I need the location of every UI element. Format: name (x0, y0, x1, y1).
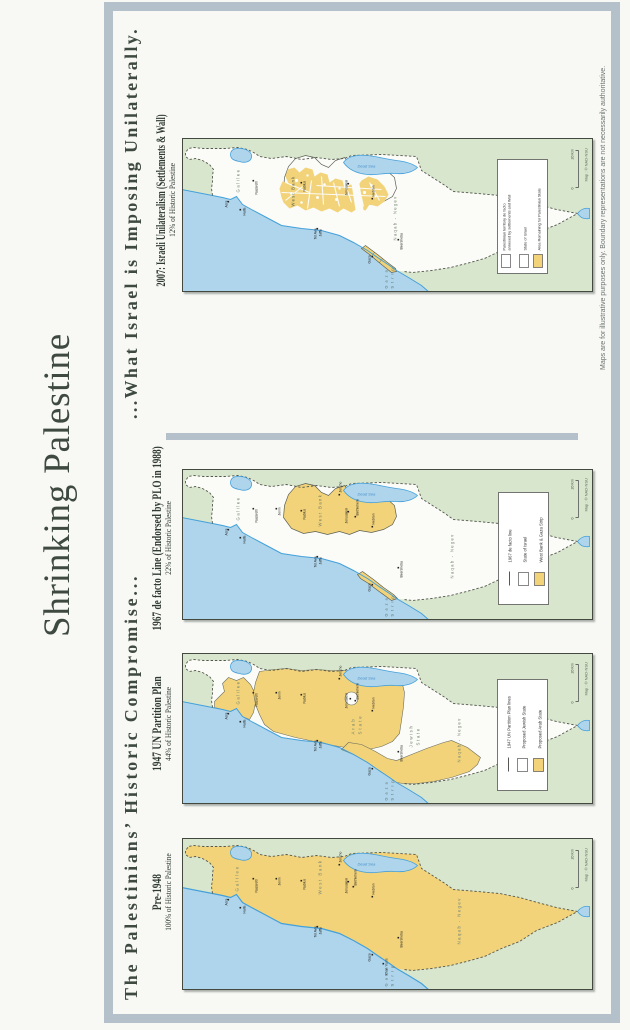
svg-text:Map : © NAD-NSU: Map : © NAD-NSU (584, 148, 589, 182)
svg-text:1967 de facto line: 1967 de facto line (508, 529, 513, 563)
svg-text:Nazareth: Nazareth (255, 509, 259, 523)
svg-text:State of Israel: State of Israel (524, 227, 528, 251)
svg-text:Acre: Acre (225, 528, 229, 535)
svg-text:Naqab - Negev: Naqab - Negev (457, 897, 462, 944)
svg-text:Tel Aviv: Tel Aviv (314, 556, 318, 568)
svg-text:Gaza: Gaza (368, 583, 372, 591)
svg-text:Jerusalem: Jerusalem (345, 180, 349, 196)
svg-text:Khan Yunis: Khan Yunis (385, 958, 389, 975)
svg-text:Haifa: Haifa (243, 207, 247, 215)
svg-text:Bethlehem: Bethlehem (356, 683, 360, 699)
svg-text:Tel Aviv: Tel Aviv (314, 926, 318, 938)
svg-text:Acre: Acre (225, 898, 229, 905)
svg-text:Galilee: Galilee (236, 496, 241, 520)
svg-text:Gaza: Gaza (368, 767, 372, 775)
svg-text:Jericho: Jericho (339, 851, 343, 862)
svg-text:Nablus: Nablus (303, 181, 307, 192)
svg-text:Nablus: Nablus (303, 879, 307, 890)
svg-text:Nablus: Nablus (303, 509, 307, 520)
svg-text:Bethlehem: Bethlehem (354, 869, 358, 885)
svg-text:20 Km: 20 Km (571, 479, 575, 489)
svg-text:Beersheba: Beersheba (400, 233, 404, 250)
svg-text:S t r i p: S t r i p (391, 267, 395, 288)
svg-text:Jaffa: Jaffa (319, 557, 323, 564)
svg-text:West Bank: West Bank (318, 494, 323, 527)
svg-text:0: 0 (571, 888, 575, 890)
svg-text:State of Israel: State of Israel (523, 537, 528, 563)
svg-text:G a z a: G a z a (385, 781, 389, 800)
svg-text:West Bank: West Bank (318, 859, 323, 894)
svg-text:Jaffa: Jaffa (319, 927, 323, 934)
svg-text:Beersheba: Beersheba (400, 745, 404, 762)
svg-text:Jerusalem: Jerusalem (345, 878, 349, 894)
svg-text:State: State (416, 727, 421, 745)
svg-text:Jaffa: Jaffa (319, 229, 323, 236)
svg-text:Dead Sea: Dead Sea (358, 676, 377, 681)
svg-text:Nazareth: Nazareth (255, 693, 259, 707)
svg-text:annexed by settlements and Wal: annexed by settlements and Wall (508, 195, 512, 251)
svg-text:S t r i p: S t r i p (390, 965, 395, 987)
svg-text:G a z a: G a z a (385, 269, 389, 288)
svg-text:Hebron: Hebron (372, 697, 376, 708)
svg-text:Bethlehem: Bethlehem (356, 499, 360, 515)
svg-text:Jerusalem: Jerusalem (345, 693, 349, 709)
svg-text:Gaza: Gaza (368, 953, 372, 961)
svg-text:Naqab - Negev: Naqab - Negev (450, 533, 455, 578)
svg-text:Jewish: Jewish (409, 724, 414, 747)
svg-text:Hebron: Hebron (372, 185, 376, 196)
svg-text:Nablus: Nablus (303, 693, 307, 704)
svg-text:Map : © NAD-NSU: Map : © NAD-NSU (584, 848, 589, 882)
svg-text:S t r i p: S t r i p (391, 779, 395, 800)
svg-text:Tel Aviv: Tel Aviv (314, 740, 318, 752)
svg-text:Haifa: Haifa (243, 905, 247, 913)
svg-text:20 Km: 20 Km (571, 149, 575, 159)
svg-text:West Bank: West Bank (291, 176, 296, 207)
svg-text:Haifa: Haifa (243, 719, 247, 727)
svg-text:Map : © NAD-NSU: Map : © NAD-NSU (584, 478, 589, 512)
svg-text:Naqab - Negev: Naqab - Negev (393, 195, 398, 240)
svg-text:State: State (358, 714, 363, 734)
svg-text:Palestinian territory de facto: Palestinian territory de facto (503, 203, 507, 250)
svg-text:Dead Sea: Dead Sea (358, 862, 377, 867)
svg-text:Acre: Acre (225, 200, 229, 207)
svg-text:0: 0 (571, 518, 575, 520)
svg-text:Naqab - Negev: Naqab - Negev (457, 717, 462, 762)
svg-text:G a z a: G a z a (385, 597, 389, 616)
svg-text:Jericho: Jericho (339, 481, 343, 492)
svg-text:20 Km: 20 Km (571, 663, 575, 673)
svg-text:Dead Sea: Dead Sea (358, 492, 377, 497)
svg-text:Jerusalem: Jerusalem (345, 508, 349, 524)
svg-text:Galilee: Galilee (236, 680, 241, 704)
svg-text:1947 UN Partition Plan lines: 1947 UN Partition Plan lines (507, 696, 512, 748)
svg-text:Proposed Arab State: Proposed Arab State (538, 709, 543, 748)
svg-text:Beersheba: Beersheba (400, 931, 404, 948)
svg-text:0: 0 (571, 702, 575, 704)
svg-text:Acre: Acre (225, 712, 229, 719)
svg-text:Tel Aviv: Tel Aviv (314, 228, 318, 240)
svg-text:Hebron: Hebron (372, 883, 376, 894)
svg-text:Galilee: Galilee (235, 865, 240, 892)
svg-text:0: 0 (571, 188, 575, 190)
svg-text:West Bank & Gaza Strip: West Bank & Gaza Strip (539, 517, 544, 563)
svg-text:Dead Sea: Dead Sea (358, 164, 377, 169)
svg-text:20 Km: 20 Km (571, 849, 575, 859)
svg-text:Arab: Arab (351, 717, 356, 734)
svg-text:Galilee: Galilee (236, 168, 241, 192)
svg-text:Jenin: Jenin (278, 691, 282, 699)
svg-text:Nazareth: Nazareth (255, 181, 259, 195)
svg-text:Haifa: Haifa (243, 535, 247, 543)
svg-text:Beersheba: Beersheba (400, 561, 404, 578)
svg-text:Jericho: Jericho (339, 665, 343, 676)
svg-text:Jenin: Jenin (278, 877, 282, 885)
svg-text:Jenin: Jenin (278, 507, 282, 515)
svg-text:Area Remaining for Palestinian: Area Remaining for Palestinian State (538, 188, 542, 250)
svg-text:S t r i p: S t r i p (391, 595, 395, 616)
svg-text:Jaffa: Jaffa (319, 741, 323, 748)
svg-text:Hebron: Hebron (372, 513, 376, 524)
svg-text:Proposed Jewish State: Proposed Jewish State (522, 705, 527, 749)
svg-text:Nazareth: Nazareth (255, 879, 259, 893)
svg-text:Gaza: Gaza (368, 255, 372, 263)
svg-text:Map : © NAD-NSU: Map : © NAD-NSU (584, 662, 589, 696)
